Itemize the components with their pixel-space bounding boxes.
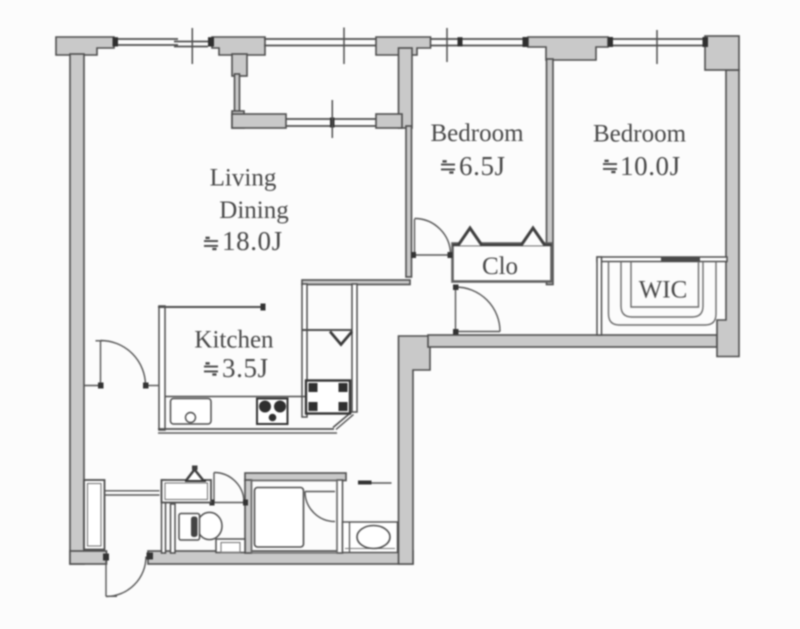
svg-text:Bedroom: Bedroom	[430, 120, 524, 147]
svg-text:WIC: WIC	[639, 277, 688, 304]
svg-text:Clo: Clo	[482, 253, 518, 280]
svg-text:3.5J: 3.5J	[222, 353, 269, 383]
svg-text:Living: Living	[210, 165, 277, 192]
svg-text:10.0J: 10.0J	[620, 151, 681, 181]
svg-text:Dining: Dining	[219, 197, 289, 224]
svg-text:Kitchen: Kitchen	[194, 327, 274, 354]
svg-text:18.0J: 18.0J	[222, 226, 283, 256]
svg-text:6.5J: 6.5J	[459, 151, 506, 181]
svg-text:Bedroom: Bedroom	[593, 121, 687, 148]
